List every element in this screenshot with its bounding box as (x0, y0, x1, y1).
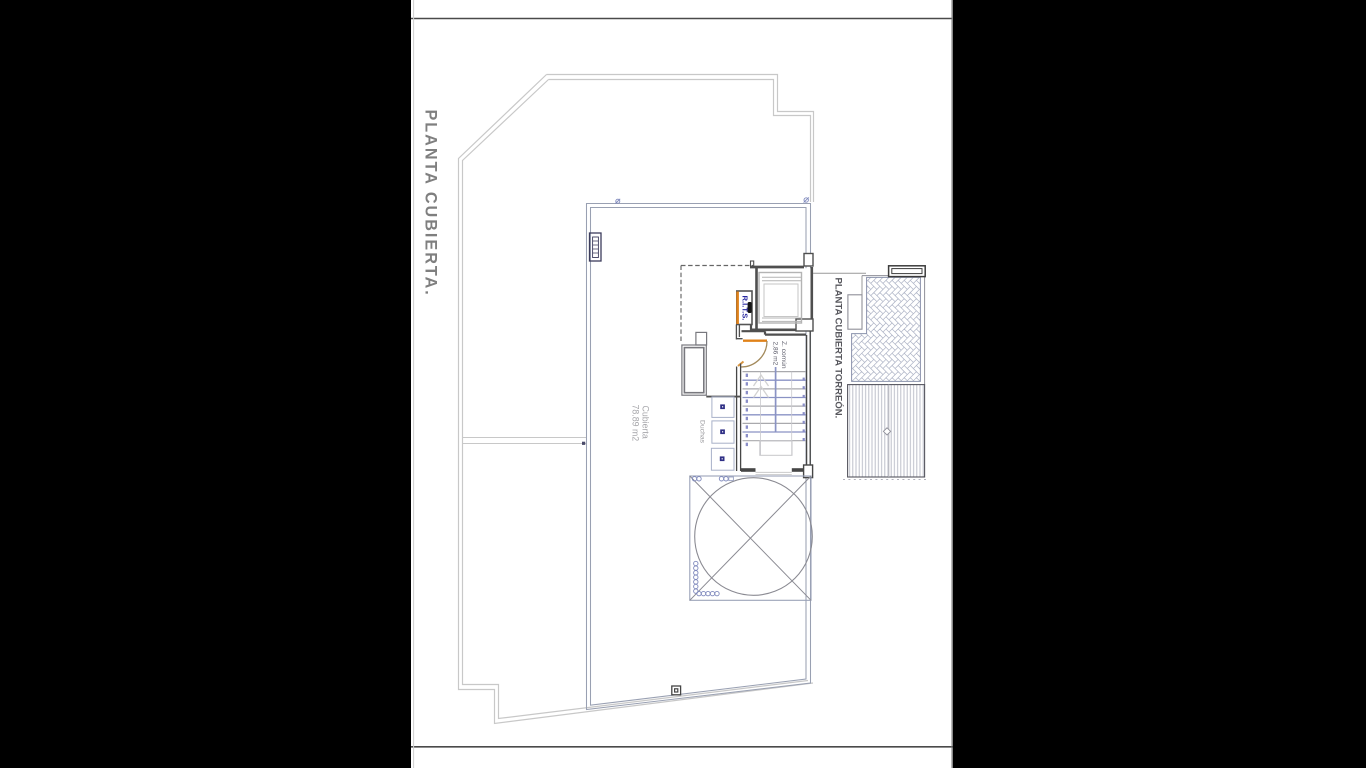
svg-text:Duchas: Duchas (699, 420, 706, 444)
svg-text:R.I.T.S.: R.I.T.S. (741, 296, 750, 321)
svg-text:PLANTA CUBIERTA.: PLANTA CUBIERTA. (422, 110, 440, 297)
svg-text:PLANTA CUBIERTA TORREÓN.: PLANTA CUBIERTA TORREÓN. (833, 278, 845, 419)
svg-text:78.89 m2: 78.89 m2 (631, 405, 641, 442)
svg-text:Cubierta: Cubierta (641, 406, 651, 439)
svg-text:Z. común: Z. común (780, 341, 787, 369)
svg-text:2,86 m2: 2,86 m2 (772, 342, 779, 366)
